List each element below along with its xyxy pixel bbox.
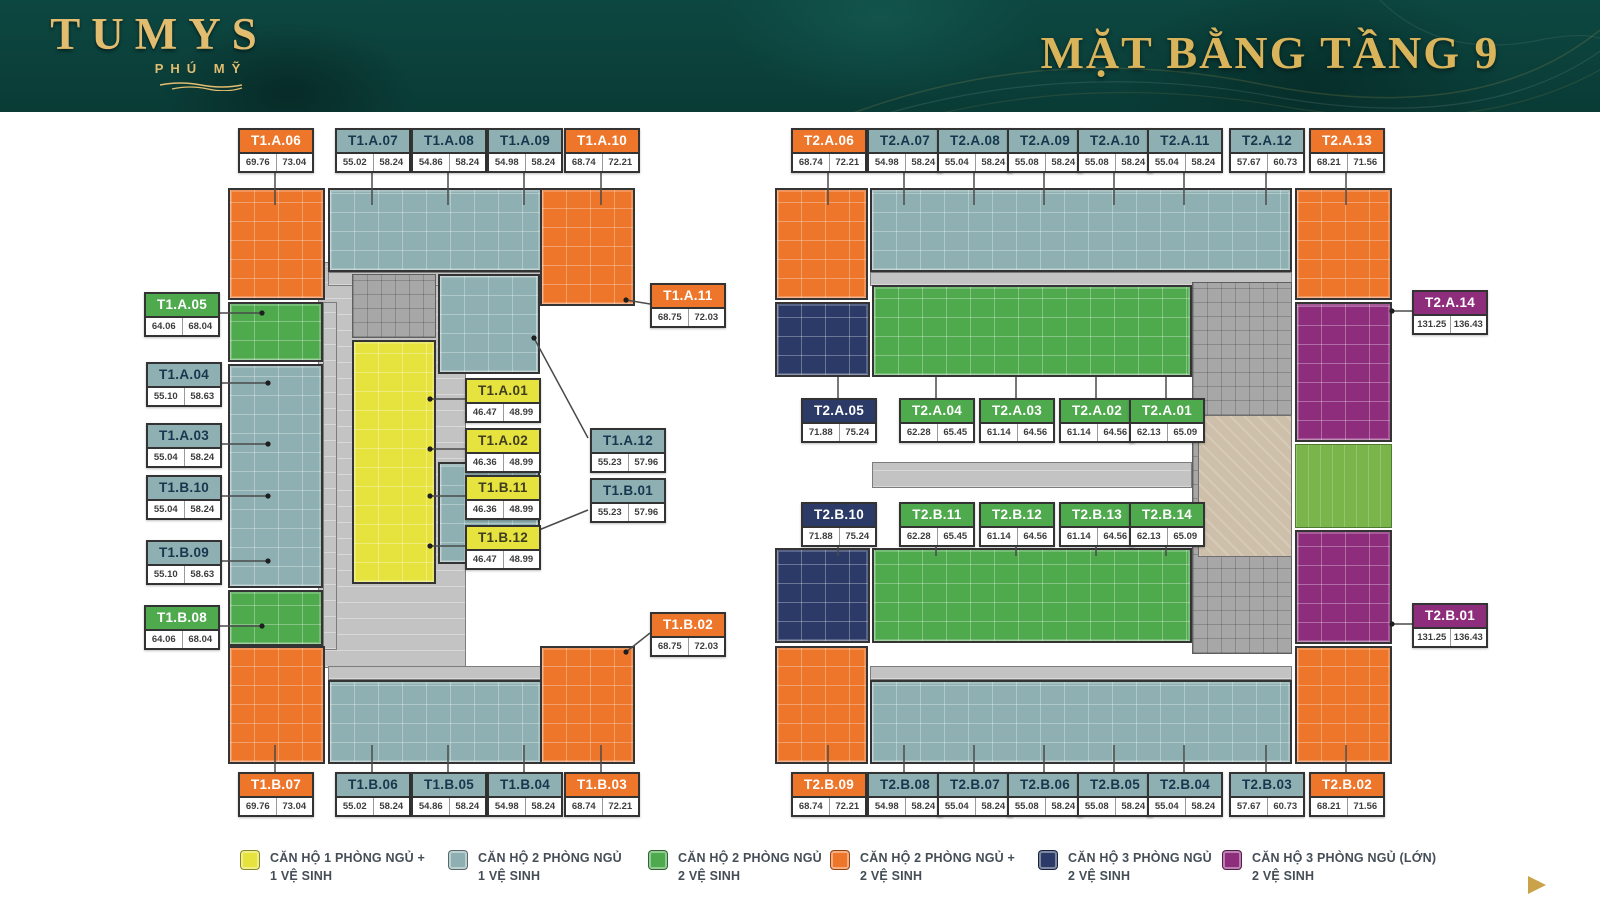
unit-area-1: 46.36 bbox=[467, 454, 504, 471]
unit-area-1: 55.04 bbox=[1149, 154, 1186, 171]
t2-block-green-row-a bbox=[872, 285, 1192, 377]
unit-area-2: 60.73 bbox=[1268, 154, 1304, 171]
unit-code: T1.B.12 bbox=[467, 527, 539, 551]
unit-code: T1.B.05 bbox=[413, 774, 485, 798]
unit-area-1: 55.04 bbox=[1149, 798, 1186, 815]
legend-item-yellow: CĂN HỘ 1 PHÒNG NGỦ +1 VỆ SINH bbox=[240, 850, 425, 885]
unit-area-2: 58.24 bbox=[1186, 154, 1222, 171]
unit-area-2: 64.56 bbox=[1098, 424, 1134, 441]
unit-area-2: 58.24 bbox=[1186, 798, 1222, 815]
legend-swatch-purple bbox=[1222, 850, 1242, 870]
unit-area-2: 58.24 bbox=[526, 154, 562, 171]
legend-line1: CĂN HỘ 2 PHÒNG NGỦ bbox=[678, 851, 822, 865]
unit-label-t1-a-09: T1.A.0954.9858.24 bbox=[487, 128, 563, 173]
unit-label-t1-a-02: T1.A.0246.3648.99 bbox=[465, 428, 541, 473]
unit-label-t1-b-12: T1.B.1246.4748.99 bbox=[465, 525, 541, 570]
unit-areas: 68.7472.21 bbox=[793, 798, 865, 815]
unit-code: T2.A.11 bbox=[1149, 130, 1221, 154]
legend-swatch-navy bbox=[1038, 850, 1058, 870]
unit-label-t1-a-08: T1.A.0854.8658.24 bbox=[411, 128, 487, 173]
unit-area-2: 136.43 bbox=[1451, 316, 1487, 333]
unit-area-1: 55.04 bbox=[939, 798, 976, 815]
unit-area-1: 54.98 bbox=[869, 798, 906, 815]
unit-areas: 71.8875.24 bbox=[803, 424, 875, 441]
unit-area-1: 55.23 bbox=[592, 504, 629, 521]
unit-code: T1.A.03 bbox=[148, 425, 220, 449]
unit-label-t2-b-10: T2.B.1071.8875.24 bbox=[801, 502, 877, 547]
unit-areas: 54.9858.24 bbox=[489, 798, 561, 815]
unit-area-2: 68.04 bbox=[183, 631, 219, 648]
unit-label-t1-a-07: T1.A.0755.0258.24 bbox=[335, 128, 411, 173]
unit-areas: 46.4748.99 bbox=[467, 404, 539, 421]
unit-label-t2-b-08: T2.B.0854.9858.24 bbox=[867, 772, 943, 817]
legend-line2: 2 VỆ SINH bbox=[860, 869, 922, 883]
unit-label-t1-b-10: T1.B.1055.0458.24 bbox=[146, 475, 222, 520]
t2-corridor-middle bbox=[872, 462, 1192, 488]
unit-label-t2-b-03: T2.B.0357.6760.73 bbox=[1229, 772, 1305, 817]
t2-block-corner-bottom-right bbox=[1295, 646, 1392, 764]
t2-block-green-row-b bbox=[872, 548, 1192, 643]
legend-line2: 2 VỆ SINH bbox=[678, 869, 740, 883]
t1-block-corner-top-right bbox=[540, 188, 635, 306]
legend-line1: CĂN HỘ 1 PHÒNG NGỦ + bbox=[270, 851, 425, 865]
unit-area-2: 64.56 bbox=[1018, 424, 1054, 441]
unit-area-1: 69.76 bbox=[240, 798, 277, 815]
unit-label-t1-b-05: T1.B.0554.8658.24 bbox=[411, 772, 487, 817]
t2-block-row-bottom bbox=[870, 680, 1292, 764]
unit-area-1: 68.74 bbox=[793, 798, 830, 815]
unit-label-t2-b-14: T2.B.1462.1365.09 bbox=[1129, 502, 1205, 547]
legend-line2: 2 VỆ SINH bbox=[1068, 869, 1130, 883]
unit-area-1: 68.74 bbox=[566, 798, 603, 815]
unit-label-t2-a-01: T2.A.0162.1365.09 bbox=[1129, 398, 1205, 443]
legend-line2: 1 VỆ SINH bbox=[270, 869, 332, 883]
unit-area-1: 61.14 bbox=[981, 424, 1018, 441]
unit-area-1: 68.74 bbox=[793, 154, 830, 171]
unit-area-1: 55.08 bbox=[1079, 798, 1116, 815]
unit-area-2: 58.24 bbox=[1116, 798, 1152, 815]
unit-areas: 62.1365.09 bbox=[1131, 424, 1203, 441]
unit-area-2: 71.56 bbox=[1348, 798, 1384, 815]
unit-label-t1-b-09: T1.B.0955.1058.63 bbox=[146, 540, 222, 585]
legend-line2: 1 VỆ SINH bbox=[478, 869, 540, 883]
unit-label-t2-b-01: T2.B.01131.25136.43 bbox=[1412, 603, 1488, 648]
unit-code: T1.A.06 bbox=[240, 130, 312, 154]
legend-label: CĂN HỘ 2 PHÒNG NGỦ1 VỆ SINH bbox=[478, 850, 622, 885]
unit-code: T2.A.05 bbox=[803, 400, 875, 424]
unit-area-2: 48.99 bbox=[504, 404, 540, 421]
unit-area-2: 58.63 bbox=[185, 388, 221, 405]
unit-area-1: 62.28 bbox=[901, 528, 938, 545]
unit-code: T1.B.11 bbox=[467, 477, 539, 501]
unit-areas: 62.2865.45 bbox=[901, 528, 973, 545]
unit-areas: 61.1464.56 bbox=[1061, 528, 1133, 545]
unit-label-t2-a-03: T2.A.0361.1464.56 bbox=[979, 398, 1055, 443]
unit-area-2: 72.03 bbox=[689, 309, 725, 326]
unit-area-2: 58.24 bbox=[185, 501, 221, 518]
unit-areas: 68.7472.21 bbox=[566, 154, 638, 171]
unit-code: T2.B.07 bbox=[939, 774, 1011, 798]
t2-block-corner-bottom-left bbox=[775, 646, 868, 764]
logo-subtitle: PHÚ MỸ bbox=[34, 61, 284, 76]
unit-areas: 54.9858.24 bbox=[869, 154, 941, 171]
t1-elevator-core bbox=[352, 274, 436, 338]
unit-area-1: 55.04 bbox=[148, 501, 185, 518]
unit-code: T1.A.10 bbox=[566, 130, 638, 154]
unit-areas: 54.9858.24 bbox=[489, 154, 561, 171]
unit-areas: 61.1464.56 bbox=[981, 424, 1053, 441]
unit-area-1: 55.10 bbox=[148, 388, 185, 405]
t1-block-corner-top-left bbox=[228, 188, 325, 300]
unit-area-2: 65.09 bbox=[1168, 424, 1204, 441]
unit-areas: 68.7472.21 bbox=[566, 798, 638, 815]
unit-label-t1-a-05: T1.A.0564.0668.04 bbox=[144, 292, 220, 337]
unit-area-1: 61.14 bbox=[1061, 528, 1098, 545]
unit-areas: 55.0458.24 bbox=[148, 449, 220, 466]
legend-line2: 2 VỆ SINH bbox=[1252, 869, 1314, 883]
unit-area-2: 58.24 bbox=[1116, 154, 1152, 171]
unit-area-2: 68.04 bbox=[183, 318, 219, 335]
unit-code: T2.B.09 bbox=[793, 774, 865, 798]
t1-block-center-teal-upper bbox=[438, 274, 540, 374]
unit-code: T1.A.07 bbox=[337, 130, 409, 154]
unit-area-1: 55.08 bbox=[1009, 798, 1046, 815]
unit-area-2: 75.24 bbox=[840, 528, 876, 545]
unit-area-1: 55.02 bbox=[337, 798, 374, 815]
unit-area-2: 58.24 bbox=[374, 798, 410, 815]
t1-block-row-top bbox=[328, 188, 542, 272]
unit-label-t1-a-12: T1.A.1255.2357.96 bbox=[590, 428, 666, 473]
unit-areas: 68.7472.21 bbox=[793, 154, 865, 171]
unit-areas: 68.7572.03 bbox=[652, 309, 724, 326]
unit-areas: 55.0858.24 bbox=[1009, 154, 1081, 171]
unit-area-2: 58.24 bbox=[185, 449, 221, 466]
page-title: MẶT BẰNG TẦNG 9 bbox=[1010, 26, 1530, 79]
unit-areas: 55.0258.24 bbox=[337, 798, 409, 815]
unit-areas: 46.3648.99 bbox=[467, 454, 539, 471]
unit-area-2: 64.56 bbox=[1098, 528, 1134, 545]
unit-code: T2.B.06 bbox=[1009, 774, 1081, 798]
unit-code: T1.B.06 bbox=[337, 774, 409, 798]
unit-areas: 57.6760.73 bbox=[1231, 154, 1303, 171]
legend-swatch-green bbox=[648, 850, 668, 870]
unit-area-1: 46.36 bbox=[467, 501, 504, 518]
unit-area-1: 62.13 bbox=[1131, 424, 1168, 441]
unit-label-t2-a-14: T2.A.14131.25136.43 bbox=[1412, 290, 1488, 335]
unit-areas: 55.0458.24 bbox=[1149, 798, 1221, 815]
unit-area-1: 57.67 bbox=[1231, 154, 1268, 171]
t1-block-yellow-column bbox=[352, 340, 436, 584]
unit-areas: 64.0668.04 bbox=[146, 631, 218, 648]
unit-area-2: 58.24 bbox=[450, 798, 486, 815]
unit-area-2: 48.99 bbox=[504, 551, 540, 568]
unit-label-t1-a-01: T1.A.0146.4748.99 bbox=[465, 378, 541, 423]
unit-area-1: 61.14 bbox=[981, 528, 1018, 545]
unit-code: T1.B.09 bbox=[148, 542, 220, 566]
unit-code: T2.B.03 bbox=[1231, 774, 1303, 798]
unit-area-1: 68.75 bbox=[652, 309, 689, 326]
unit-area-1: 71.88 bbox=[803, 424, 840, 441]
unit-area-2: 136.43 bbox=[1451, 629, 1487, 646]
unit-area-2: 58.24 bbox=[906, 154, 942, 171]
header-banner: TUMYS PHÚ MỸ MẶT BẰNG TẦNG 9 bbox=[0, 0, 1600, 112]
unit-area-1: 46.47 bbox=[467, 404, 504, 421]
unit-area-1: 55.10 bbox=[148, 566, 185, 583]
unit-areas: 131.25136.43 bbox=[1414, 629, 1486, 646]
unit-area-1: 68.75 bbox=[652, 638, 689, 655]
unit-code: T1.B.07 bbox=[240, 774, 312, 798]
unit-area-2: 58.24 bbox=[450, 154, 486, 171]
t1-block-corner-bottom-left bbox=[228, 646, 325, 764]
unit-area-1: 55.02 bbox=[337, 154, 374, 171]
unit-label-t2-a-05: T2.A.0571.8875.24 bbox=[801, 398, 877, 443]
t2-corridor-bottom bbox=[870, 666, 1292, 680]
unit-label-t1-a-06: T1.A.0669.7673.04 bbox=[238, 128, 314, 173]
unit-area-2: 72.03 bbox=[689, 638, 725, 655]
unit-areas: 68.7572.03 bbox=[652, 638, 724, 655]
t1-block-left-teal-column bbox=[228, 364, 323, 588]
unit-area-2: 58.24 bbox=[526, 798, 562, 815]
t2-block-corner-top-left bbox=[775, 188, 868, 300]
unit-label-t2-a-09: T2.A.0955.0858.24 bbox=[1007, 128, 1083, 173]
unit-area-2: 58.24 bbox=[1046, 798, 1082, 815]
unit-areas: 64.0668.04 bbox=[146, 318, 218, 335]
unit-area-2: 65.45 bbox=[938, 528, 974, 545]
floor-plan-page: TUMYS PHÚ MỸ MẶT BẰNG TẦNG 9 bbox=[0, 0, 1600, 900]
unit-code: T2.B.08 bbox=[869, 774, 941, 798]
unit-label-t2-b-02: T2.B.0268.2171.56 bbox=[1309, 772, 1385, 817]
t1-block-left-green-upper bbox=[228, 302, 323, 362]
unit-area-1: 131.25 bbox=[1414, 316, 1451, 333]
unit-areas: 55.0858.24 bbox=[1009, 798, 1081, 815]
t2-block-row-top bbox=[870, 188, 1292, 272]
unit-area-1: 61.14 bbox=[1061, 424, 1098, 441]
unit-areas: 46.4748.99 bbox=[467, 551, 539, 568]
unit-area-2: 64.56 bbox=[1018, 528, 1054, 545]
unit-area-2: 65.09 bbox=[1168, 528, 1204, 545]
unit-areas: 55.0258.24 bbox=[337, 154, 409, 171]
unit-area-1: 54.98 bbox=[489, 798, 526, 815]
unit-label-t2-b-12: T2.B.1261.1464.56 bbox=[979, 502, 1055, 547]
t1-corridor-bottom bbox=[328, 666, 542, 680]
unit-areas: 61.1464.56 bbox=[981, 528, 1053, 545]
unit-areas: 55.0858.24 bbox=[1079, 154, 1151, 171]
legend-label: CĂN HỘ 3 PHÒNG NGỦ2 VỆ SINH bbox=[1068, 850, 1212, 885]
unit-label-t1-b-11: T1.B.1146.3648.99 bbox=[465, 475, 541, 520]
unit-areas: 71.8875.24 bbox=[803, 528, 875, 545]
unit-label-t2-b-05: T2.B.0555.0858.24 bbox=[1077, 772, 1153, 817]
unit-code: T1.B.10 bbox=[148, 477, 220, 501]
unit-area-1: 55.23 bbox=[592, 454, 629, 471]
unit-code: T1.B.08 bbox=[146, 607, 218, 631]
unit-code: T1.A.04 bbox=[148, 364, 220, 388]
unit-areas: 68.2171.56 bbox=[1311, 154, 1383, 171]
unit-area-1: 62.13 bbox=[1131, 528, 1168, 545]
unit-label-t2-b-04: T2.B.0455.0458.24 bbox=[1147, 772, 1223, 817]
unit-areas: 46.3648.99 bbox=[467, 501, 539, 518]
unit-area-2: 57.96 bbox=[629, 454, 665, 471]
unit-code: T2.A.10 bbox=[1079, 130, 1151, 154]
legend-item-teal: CĂN HỘ 2 PHÒNG NGỦ1 VỆ SINH bbox=[448, 850, 622, 885]
tumys-logo: TUMYS PHÚ MỸ bbox=[34, 8, 284, 96]
unit-area-2: 72.21 bbox=[603, 154, 639, 171]
unit-code: T2.B.02 bbox=[1311, 774, 1383, 798]
unit-code: T2.B.14 bbox=[1131, 504, 1203, 528]
unit-area-1: 54.86 bbox=[413, 154, 450, 171]
unit-code: T2.A.03 bbox=[981, 400, 1053, 424]
t2-block-purple-lower bbox=[1295, 530, 1392, 644]
unit-label-t2-a-06: T2.A.0668.7472.21 bbox=[791, 128, 867, 173]
unit-code: T1.A.08 bbox=[413, 130, 485, 154]
unit-area-1: 54.98 bbox=[489, 154, 526, 171]
unit-code: T2.A.09 bbox=[1009, 130, 1081, 154]
unit-area-2: 72.21 bbox=[603, 798, 639, 815]
unit-code: T1.A.02 bbox=[467, 430, 539, 454]
unit-area-2: 57.96 bbox=[629, 504, 665, 521]
unit-code: T2.B.04 bbox=[1149, 774, 1221, 798]
unit-code: T1.A.01 bbox=[467, 380, 539, 404]
unit-area-2: 48.99 bbox=[504, 501, 540, 518]
unit-area-1: 69.76 bbox=[240, 154, 277, 171]
unit-area-2: 73.04 bbox=[277, 154, 313, 171]
unit-areas: 55.0458.24 bbox=[939, 798, 1011, 815]
unit-area-1: 64.06 bbox=[146, 631, 183, 648]
t2-courtyard-terrace bbox=[1198, 415, 1292, 557]
legend-line1: CĂN HỘ 2 PHÒNG NGỦ + bbox=[860, 851, 1015, 865]
unit-label-t2-b-11: T2.B.1162.2865.45 bbox=[899, 502, 975, 547]
unit-code: T2.A.14 bbox=[1414, 292, 1486, 316]
unit-code: T1.A.11 bbox=[652, 285, 724, 309]
unit-area-1: 68.21 bbox=[1311, 798, 1348, 815]
legend-label: CĂN HỘ 3 PHÒNG NGỦ (LỚN)2 VỆ SINH bbox=[1252, 850, 1436, 885]
unit-label-t1-b-01: T1.B.0155.2357.96 bbox=[590, 478, 666, 523]
t2-block-corner-top-right bbox=[1295, 188, 1392, 300]
t1-block-left-green-lower bbox=[228, 590, 323, 646]
legend-label: CĂN HỘ 2 PHÒNG NGỦ2 VỆ SINH bbox=[678, 850, 822, 885]
legend-swatch-teal bbox=[448, 850, 468, 870]
unit-areas: 55.1058.63 bbox=[148, 388, 220, 405]
unit-areas: 69.7673.04 bbox=[240, 154, 312, 171]
unit-area-1: 54.86 bbox=[413, 798, 450, 815]
unit-area-2: 65.45 bbox=[938, 424, 974, 441]
unit-code: T2.B.13 bbox=[1061, 504, 1133, 528]
unit-label-t2-a-11: T2.A.1155.0458.24 bbox=[1147, 128, 1223, 173]
unit-label-t2-a-02: T2.A.0261.1464.56 bbox=[1059, 398, 1135, 443]
unit-areas: 55.0458.24 bbox=[939, 154, 1011, 171]
unit-areas: 55.2357.96 bbox=[592, 504, 664, 521]
unit-code: T1.B.04 bbox=[489, 774, 561, 798]
unit-area-1: 57.67 bbox=[1231, 798, 1268, 815]
unit-label-t2-a-07: T2.A.0754.9858.24 bbox=[867, 128, 943, 173]
unit-area-2: 71.56 bbox=[1348, 154, 1384, 171]
t2-block-navy-upper bbox=[775, 302, 870, 377]
unit-area-2: 48.99 bbox=[504, 454, 540, 471]
t2-garden bbox=[1295, 444, 1392, 528]
legend-swatch-yellow bbox=[240, 850, 260, 870]
unit-code: T2.A.04 bbox=[901, 400, 973, 424]
unit-area-1: 55.08 bbox=[1009, 154, 1046, 171]
unit-code: T2.A.07 bbox=[869, 130, 941, 154]
unit-area-2: 58.24 bbox=[374, 154, 410, 171]
legend-item-purple: CĂN HỘ 3 PHÒNG NGỦ (LỚN)2 VỆ SINH bbox=[1222, 850, 1436, 885]
unit-label-t1-a-10: T1.A.1068.7472.21 bbox=[564, 128, 640, 173]
unit-area-1: 68.21 bbox=[1311, 154, 1348, 171]
unit-label-t1-b-02: T1.B.0268.7572.03 bbox=[650, 612, 726, 657]
unit-code: T2.A.06 bbox=[793, 130, 865, 154]
unit-area-1: 55.04 bbox=[939, 154, 976, 171]
unit-area-2: 72.21 bbox=[830, 154, 866, 171]
unit-areas: 68.2171.56 bbox=[1311, 798, 1383, 815]
unit-code: T2.B.10 bbox=[803, 504, 875, 528]
unit-label-t1-a-04: T1.A.0455.1058.63 bbox=[146, 362, 222, 407]
unit-area-1: 131.25 bbox=[1414, 629, 1451, 646]
unit-label-t1-b-04: T1.B.0454.9858.24 bbox=[487, 772, 563, 817]
legend-line1: CĂN HỘ 3 PHÒNG NGỦ bbox=[1068, 851, 1212, 865]
unit-code: T2.B.11 bbox=[901, 504, 973, 528]
unit-label-t2-a-04: T2.A.0462.2865.45 bbox=[899, 398, 975, 443]
unit-code: T1.B.02 bbox=[652, 614, 724, 638]
unit-area-2: 73.04 bbox=[277, 798, 313, 815]
unit-area-2: 60.73 bbox=[1268, 798, 1304, 815]
unit-areas: 62.1365.09 bbox=[1131, 528, 1203, 545]
unit-areas: 55.0458.24 bbox=[1149, 154, 1221, 171]
unit-area-1: 62.28 bbox=[901, 424, 938, 441]
t2-block-purple-upper bbox=[1295, 302, 1392, 442]
legend-swatch-orange bbox=[830, 850, 850, 870]
unit-code: T2.A.12 bbox=[1231, 130, 1303, 154]
t1-block-corner-bottom-right bbox=[540, 646, 635, 764]
t1-corridor-left bbox=[323, 302, 337, 650]
unit-areas: 55.0458.24 bbox=[148, 501, 220, 518]
unit-area-1: 55.08 bbox=[1079, 154, 1116, 171]
logo-title: TUMYS bbox=[34, 8, 284, 60]
unit-label-t2-b-06: T2.B.0655.0858.24 bbox=[1007, 772, 1083, 817]
unit-label-t2-a-13: T2.A.1368.2171.56 bbox=[1309, 128, 1385, 173]
unit-area-1: 55.04 bbox=[148, 449, 185, 466]
unit-areas: 131.25136.43 bbox=[1414, 316, 1486, 333]
unit-area-2: 58.24 bbox=[976, 154, 1012, 171]
unit-areas: 61.1464.56 bbox=[1061, 424, 1133, 441]
unit-code: T2.A.01 bbox=[1131, 400, 1203, 424]
unit-label-t2-a-12: T2.A.1257.6760.73 bbox=[1229, 128, 1305, 173]
unit-code: T1.A.05 bbox=[146, 294, 218, 318]
logo-wave-icon bbox=[34, 78, 284, 96]
legend-item-orange: CĂN HỘ 2 PHÒNG NGỦ +2 VỆ SINH bbox=[830, 850, 1015, 885]
unit-label-t1-a-11: T1.A.1168.7572.03 bbox=[650, 283, 726, 328]
legend-line1: CĂN HỘ 2 PHÒNG NGỦ bbox=[478, 851, 622, 865]
unit-areas: 55.2357.96 bbox=[592, 454, 664, 471]
unit-area-1: 64.06 bbox=[146, 318, 183, 335]
unit-code: T2.A.13 bbox=[1311, 130, 1383, 154]
unit-areas: 57.6760.73 bbox=[1231, 798, 1303, 815]
unit-area-2: 75.24 bbox=[840, 424, 876, 441]
unit-area-2: 58.24 bbox=[906, 798, 942, 815]
legend-label: CĂN HỘ 1 PHÒNG NGỦ +1 VỆ SINH bbox=[270, 850, 425, 885]
unit-label-t2-a-10: T2.A.1055.0858.24 bbox=[1077, 128, 1153, 173]
unit-label-t2-b-13: T2.B.1361.1464.56 bbox=[1059, 502, 1135, 547]
unit-area-2: 72.21 bbox=[830, 798, 866, 815]
unit-label-t1-b-06: T1.B.0655.0258.24 bbox=[335, 772, 411, 817]
unit-label-t2-a-08: T2.A.0855.0458.24 bbox=[937, 128, 1013, 173]
unit-label-t2-b-07: T2.B.0755.0458.24 bbox=[937, 772, 1013, 817]
unit-area-1: 46.47 bbox=[467, 551, 504, 568]
corner-arrow-icon bbox=[1528, 876, 1546, 894]
unit-code: T1.B.03 bbox=[566, 774, 638, 798]
unit-area-1: 71.88 bbox=[803, 528, 840, 545]
unit-area-2: 58.63 bbox=[185, 566, 221, 583]
unit-label-t1-b-03: T1.B.0368.7472.21 bbox=[564, 772, 640, 817]
unit-code: T2.A.02 bbox=[1061, 400, 1133, 424]
